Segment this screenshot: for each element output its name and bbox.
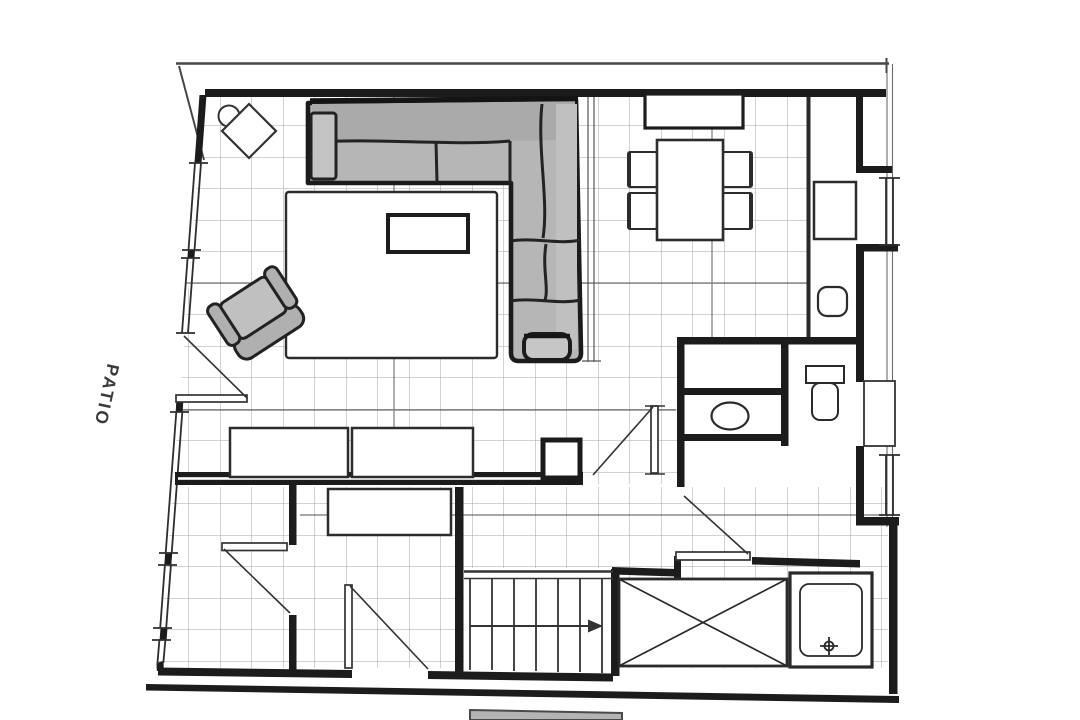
- sofa-back-edge: [310, 99, 578, 102]
- shower-tray: [790, 573, 872, 667]
- crossed-shaft: [619, 579, 787, 666]
- washbasin: [712, 403, 749, 430]
- sofa-back-band: [312, 101, 575, 143]
- bed: [328, 489, 451, 535]
- room-b-door-leaf: [345, 585, 352, 668]
- dining-chair: [723, 193, 752, 229]
- sofa-arm-cushion: [311, 113, 336, 179]
- pillar-column: [543, 440, 580, 478]
- toilet-bowl: [812, 383, 838, 420]
- sideboard: [645, 94, 743, 128]
- wall-cabinet: [814, 182, 856, 239]
- entry-door-leaf: [676, 552, 750, 560]
- stool: [818, 287, 847, 316]
- toilet-tank: [806, 366, 844, 383]
- floor-plan-sketch: PATIO: [0, 0, 1080, 720]
- dining-chair: [628, 193, 657, 229]
- patio-door-leaf: [176, 395, 247, 402]
- wall-niche: [864, 381, 895, 446]
- dining-chair: [628, 152, 657, 187]
- sofa-chaise-band: [556, 104, 577, 349]
- coffee-table: [388, 215, 468, 252]
- console-units: [230, 428, 473, 477]
- bath-door-leaf: [651, 406, 658, 473]
- dining-chair: [723, 152, 752, 187]
- room-a-door-leaf: [222, 543, 287, 551]
- dining-table: [657, 140, 723, 240]
